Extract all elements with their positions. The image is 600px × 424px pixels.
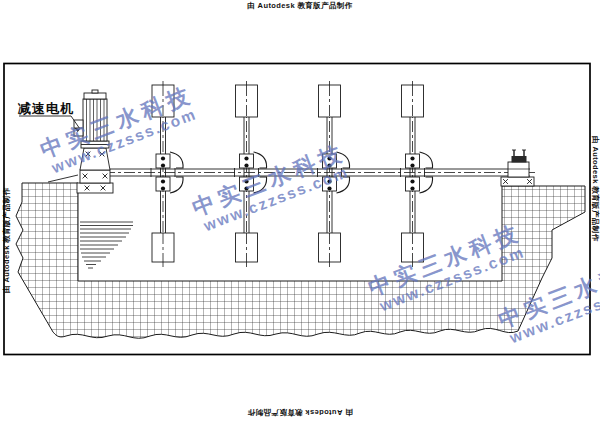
motor-leader-line xyxy=(19,116,80,132)
drawing-area xyxy=(0,0,600,424)
end-bearing xyxy=(501,150,534,186)
autocad-plot-page: 由 Autodesk 教育版产品制作 由 Autodesk 教育版产品制作 由 … xyxy=(0,0,600,424)
mixer-3 xyxy=(318,81,350,267)
tank-structure xyxy=(16,183,585,338)
main-shaft xyxy=(104,169,536,176)
mixer-1 xyxy=(151,81,183,267)
motor-label: 减速电机 xyxy=(18,100,74,118)
mixer-2 xyxy=(235,81,267,267)
mixer-4 xyxy=(401,81,433,267)
slurry-cone xyxy=(80,222,133,268)
